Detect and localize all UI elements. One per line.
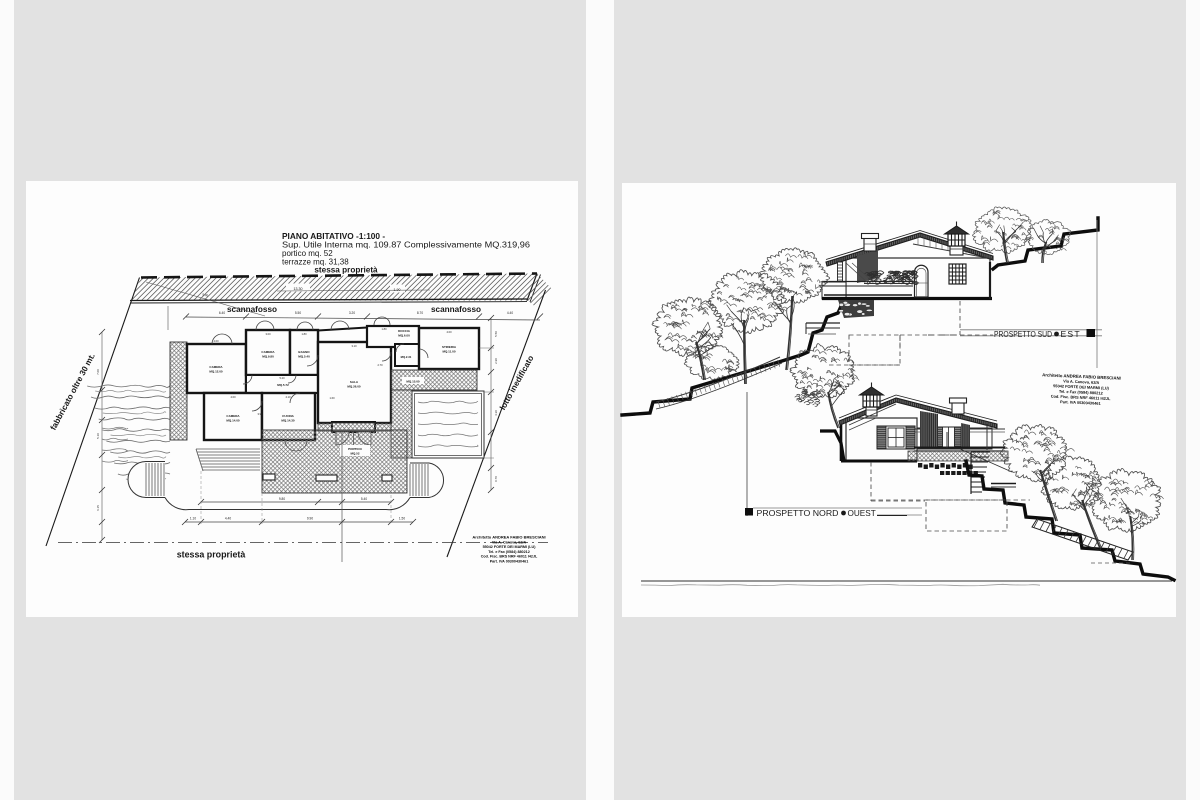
svg-text:8.70: 8.70 [417,311,423,315]
svg-text:DOCCIA: DOCCIA [398,329,411,333]
svg-text:1.80: 1.80 [381,327,387,331]
svg-text:4.00: 4.00 [230,395,236,399]
svg-text:SALA: SALA [350,380,359,384]
svg-text:STIRERIA: STIRERIA [442,345,457,349]
svg-text:CAMERA: CAMERA [209,365,223,369]
svg-text:MQ.26.00: MQ.26.00 [347,385,361,389]
svg-text:BAGNO: BAGNO [298,350,310,354]
svg-text:6.40: 6.40 [219,311,225,315]
svg-text:stessa proprietà: stessa proprietà [177,550,246,560]
svg-text:Cod. Fisc. BRS NRF 46011 I42JL: Cod. Fisc. BRS NRF 46011 I42JL [481,555,538,559]
svg-text:Tel. e Fax (0584) 880212: Tel. e Fax (0584) 880212 [488,550,530,554]
svg-text:3.20: 3.20 [349,311,355,315]
svg-text:MQ.52: MQ.52 [350,452,359,456]
svg-text:CAMERA: CAMERA [226,414,240,418]
svg-text:2.70: 2.70 [377,363,383,367]
svg-text:55042 FORTE DEI MARMI (LU): 55042 FORTE DEI MARMI (LU) [483,545,537,549]
svg-text:4.00: 4.00 [446,330,452,334]
svg-text:OUEST: OUEST [848,509,876,518]
svg-text:9.80: 9.80 [279,497,285,501]
svg-text:5.50: 5.50 [295,311,301,315]
svg-text:4.40: 4.40 [507,311,513,315]
svg-text:3.90: 3.90 [257,412,263,416]
svg-text:stessa proprietà: stessa proprietà [314,266,378,275]
svg-text:5.10: 5.10 [96,433,100,439]
svg-text:MQ.14.00: MQ.14.00 [226,419,240,423]
svg-text:1.10: 1.10 [190,517,196,521]
svg-text:MQ.9.80: MQ.9.80 [262,355,274,359]
svg-text:9.90: 9.90 [307,517,313,521]
svg-text:1.50: 1.50 [399,517,405,521]
svg-text:Via A. Canova, 62/A: Via A. Canova, 62/A [492,540,527,544]
svg-text:Part. IVA 00300430461: Part. IVA 00300430461 [490,560,529,564]
svg-text:Architetto ANDREA FABIO BRESCI: Architetto ANDREA FABIO BRESCIANI [472,535,545,540]
svg-text:CUCINA: CUCINA [282,414,294,418]
svg-text:4.30: 4.30 [494,410,498,416]
svg-text:MQ.11.00: MQ.11.00 [442,350,455,354]
svg-text:PROSPETTO NORD: PROSPETTO NORD [757,509,839,518]
svg-text:PROSPETTO SUD: PROSPETTO SUD [994,330,1052,339]
svg-text:MQ.5.72: MQ.5.72 [277,383,289,387]
svg-text:CAMERA: CAMERA [261,350,275,354]
svg-text:3.00: 3.00 [265,332,271,336]
svg-text:scannafosso: scannafosso [227,305,277,314]
svg-text:1.60: 1.60 [329,396,335,400]
svg-text:5.20: 5.20 [279,376,285,380]
svg-text:PIANO ABITATIVO -1:100 -: PIANO ABITATIVO -1:100 - [282,231,385,241]
svg-text:7.00: 7.00 [96,369,100,375]
svg-text:4.40: 4.40 [225,517,231,521]
svg-text:3.10: 3.10 [351,344,357,348]
svg-text:EST: EST [1061,329,1081,339]
svg-text:MQ.15.00: MQ.15.00 [406,380,420,384]
svg-text:MQ.14.30: MQ.14.30 [281,419,295,423]
svg-text:scannafosso: scannafosso [431,305,481,314]
svg-text:0.70: 0.70 [494,476,498,482]
svg-text:5.50: 5.50 [494,331,498,337]
svg-text:MQ.6.00: MQ.6.00 [398,334,410,338]
svg-text:1.80: 1.80 [301,332,307,336]
svg-text:2.90: 2.90 [494,358,498,364]
svg-text:4.10: 4.10 [285,395,291,399]
svg-text:6.15: 6.15 [96,505,100,511]
svg-text:PORTICO: PORTICO [348,447,362,451]
svg-text:MQ.5.40: MQ.5.40 [298,355,310,359]
svg-text:4.00: 4.00 [213,339,219,343]
svg-text:MQ.2.31: MQ.2.31 [401,355,412,359]
svg-text:5.40: 5.40 [361,497,367,501]
svg-text:MQ.12.00: MQ.12.00 [209,370,223,374]
svg-text:13.30: 13.30 [294,287,303,291]
